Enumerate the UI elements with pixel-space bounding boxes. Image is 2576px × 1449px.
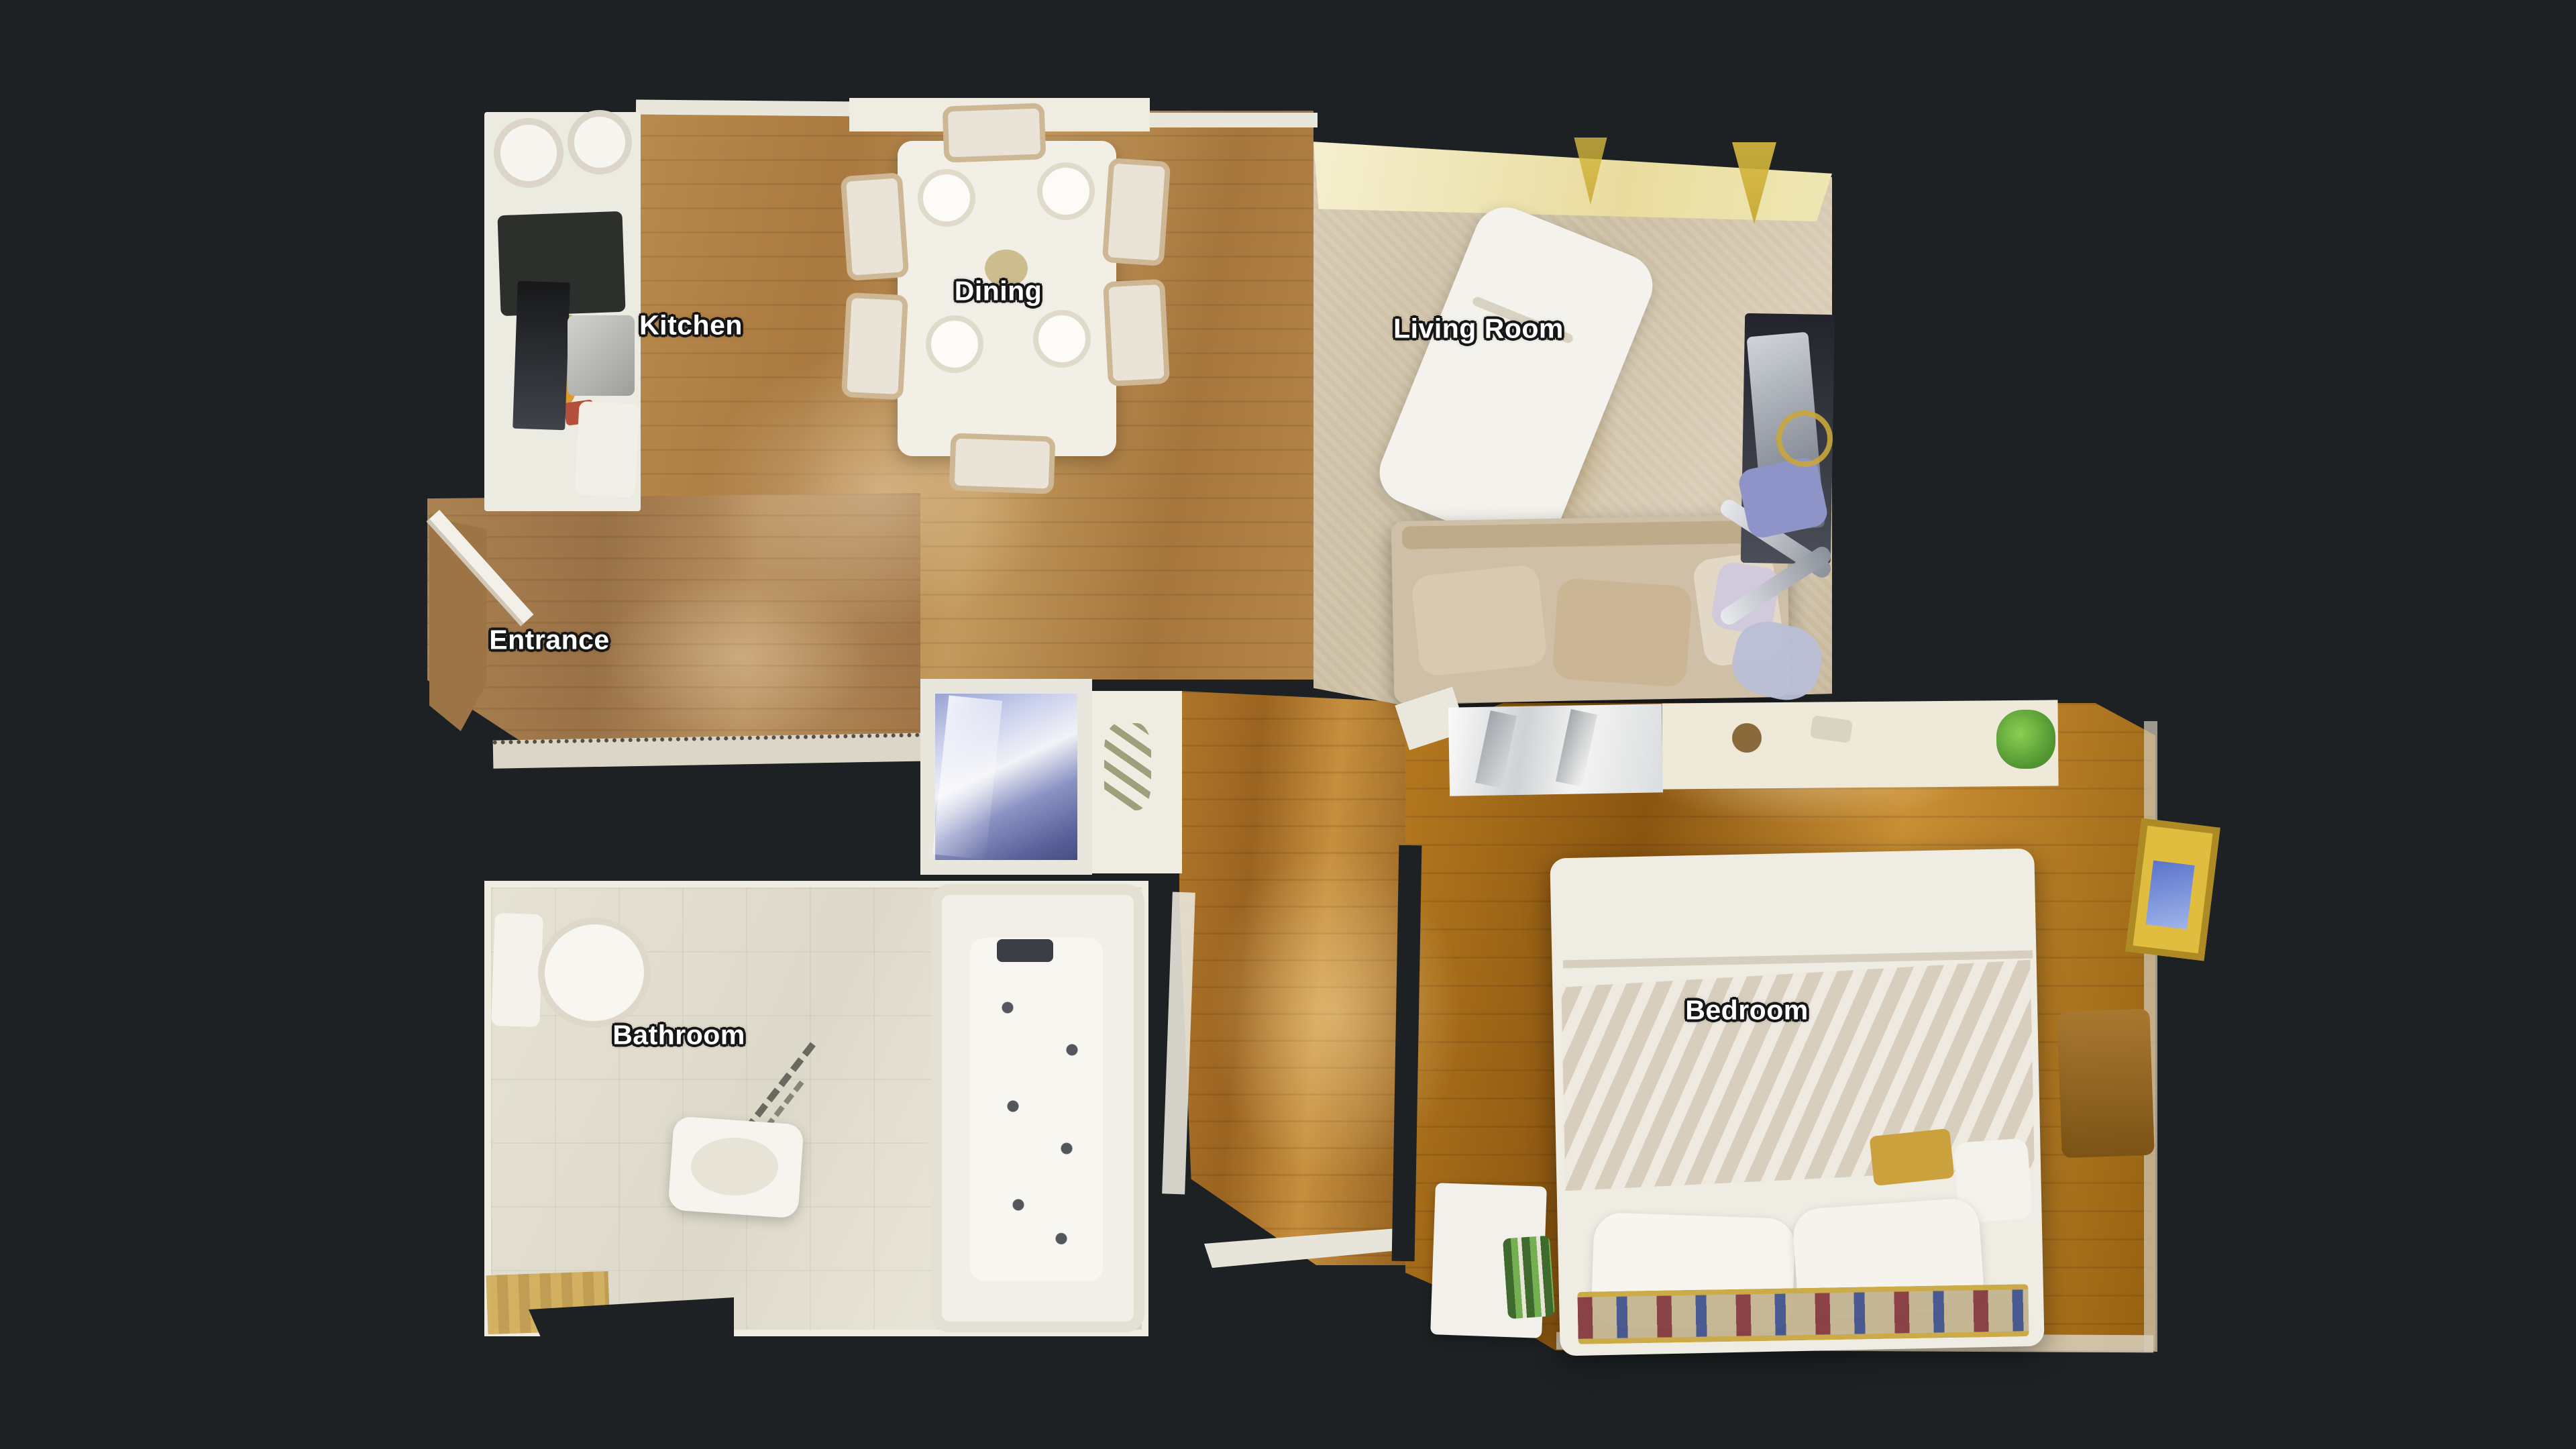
wall-art-inner xyxy=(2145,861,2194,930)
plate xyxy=(494,118,563,188)
vanity-item xyxy=(1732,723,1762,753)
nightstand xyxy=(2057,1009,2155,1159)
floorplan-canvas[interactable]: Kitchen Dining Living Room Entrance Bath… xyxy=(0,0,2576,1449)
bathtub-faucet xyxy=(997,939,1053,962)
wall-edge xyxy=(1148,113,1318,127)
room-label-kitchen[interactable]: Kitchen xyxy=(639,310,743,341)
dining-chair xyxy=(841,292,908,400)
room-label-entrance[interactable]: Entrance xyxy=(489,625,609,656)
dining-chair xyxy=(1102,158,1171,266)
plant xyxy=(1996,710,2055,769)
dining-chair xyxy=(943,103,1046,162)
wall-edge xyxy=(636,100,857,117)
place-setting xyxy=(926,315,983,373)
plate xyxy=(568,110,632,174)
room-label-bedroom[interactable]: Bedroom xyxy=(1685,995,1808,1026)
sofa-pillow xyxy=(1411,563,1548,677)
plant-basket xyxy=(1503,1236,1555,1320)
dining-chair xyxy=(949,433,1056,494)
room-label-dining[interactable]: Dining xyxy=(955,276,1042,307)
room-label-living-room[interactable]: Living Room xyxy=(1393,313,1564,345)
dining-chair xyxy=(841,172,910,281)
kitchen-sink-basin xyxy=(574,401,639,498)
room-label-bathroom[interactable]: Bathroom xyxy=(612,1020,745,1051)
dining-chair xyxy=(1103,279,1170,387)
side-table xyxy=(1776,411,1833,467)
place-setting xyxy=(918,169,975,227)
sofa-pillow xyxy=(1552,578,1693,688)
kitchen-sink xyxy=(568,315,635,396)
toilet-tank xyxy=(491,913,543,1027)
place-setting xyxy=(1033,310,1091,368)
place-setting xyxy=(1037,162,1095,220)
oven-door xyxy=(513,281,570,431)
door-decor xyxy=(1104,723,1151,810)
bed-runner xyxy=(1577,1284,2029,1344)
hallway-floor[interactable] xyxy=(1179,691,1415,1265)
bed-tray xyxy=(1869,1128,1954,1186)
bathtub-jets xyxy=(986,979,1093,1261)
sink-basin xyxy=(691,1138,778,1195)
